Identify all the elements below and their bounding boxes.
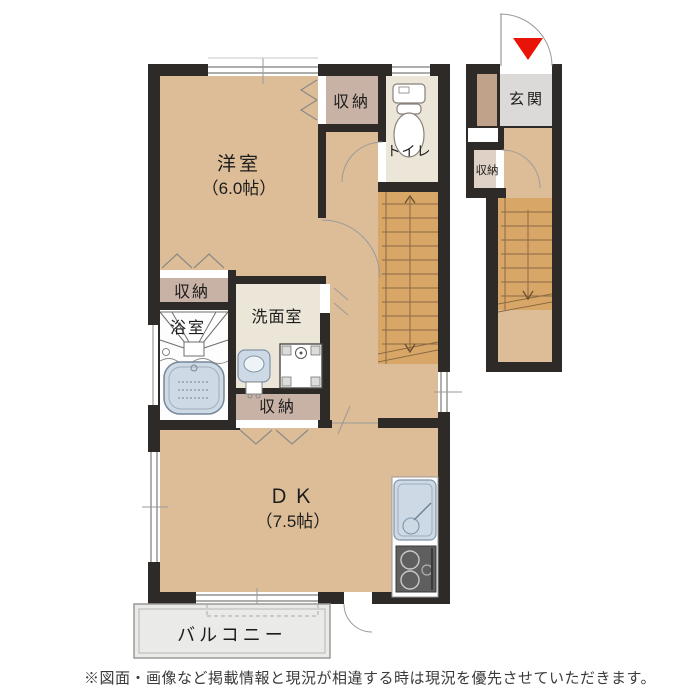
label-entrance-closet: 収納	[476, 164, 499, 177]
label-washroom: 洗面室	[251, 308, 302, 326]
washing-machine-space	[280, 344, 322, 388]
label-closet-low: 収納	[259, 398, 297, 416]
floor-plan-drawing: 洋室 （6.0帖） 収納 トイレ 収納 浴室 洗面室 収納 ＤＫ （7.5帖） …	[0, 0, 700, 700]
label-toilet: トイレ	[387, 143, 432, 159]
label-dk: ＤＫ	[269, 486, 317, 508]
disclaimer-text: ※図面・画像など掲載情報と現況が相違する時は現況を優先させていただきます。	[84, 667, 656, 688]
bathtub	[164, 362, 224, 414]
shoe-cabinet	[477, 74, 497, 126]
label-closet-top: 収納	[333, 93, 371, 111]
floor-plan-canvas: 洋室 （6.0帖） 収納 トイレ 収納 浴室 洗面室 収納 ＤＫ （7.5帖） …	[0, 0, 700, 700]
entrance-marker-icon	[513, 38, 543, 60]
label-dk-size: （7.5帖）	[256, 512, 331, 531]
kitchen-unit	[392, 477, 438, 597]
label-western-room: 洋室	[217, 153, 261, 175]
label-bath: 浴室	[170, 319, 206, 337]
stairs-entrance	[498, 198, 552, 312]
label-closet-mid: 収納	[174, 283, 210, 301]
label-western-room-size: （6.0帖）	[202, 179, 277, 198]
label-genkan: 玄関	[509, 91, 545, 108]
label-balcony: バルコニー	[177, 625, 287, 645]
stairs-main	[378, 192, 438, 364]
